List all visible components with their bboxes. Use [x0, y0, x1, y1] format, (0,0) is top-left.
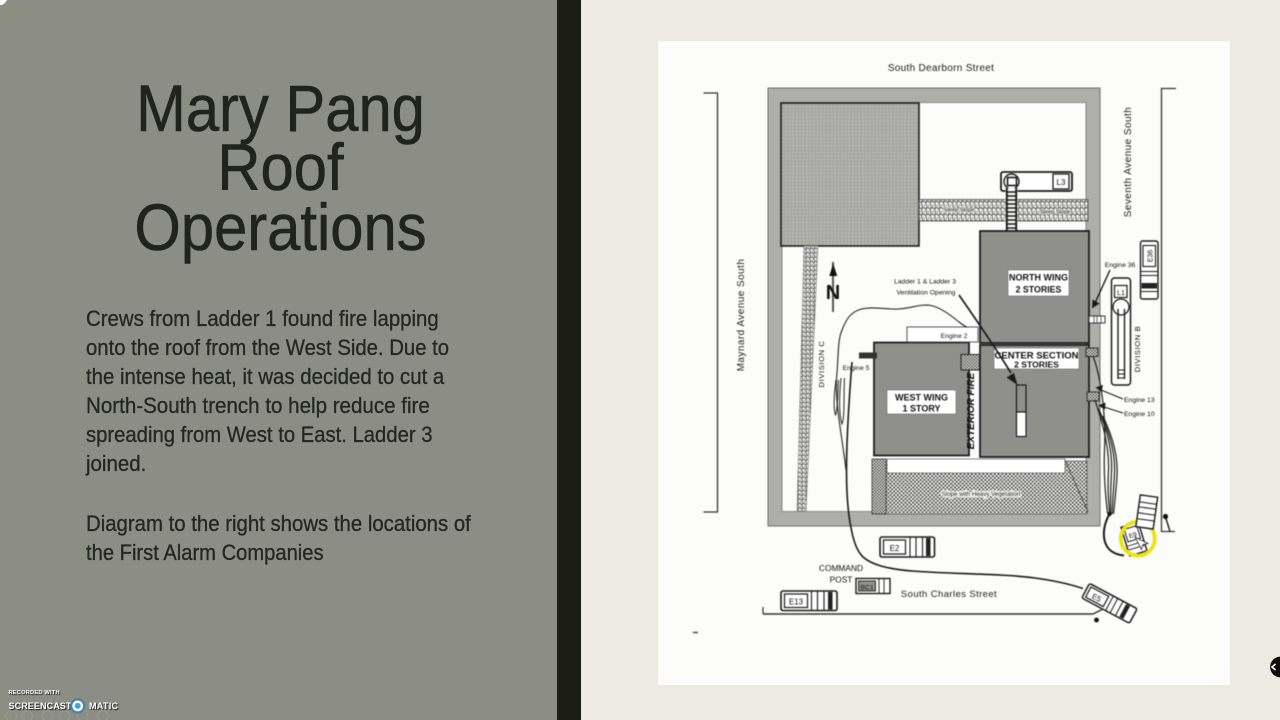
svg-text:Engine 5: Engine 5: [843, 365, 870, 372]
svg-text:DIVISION C: DIVISION C: [817, 341, 826, 388]
svg-text:Ladder 1 & Ladder 3: Ladder 1 & Ladder 3: [894, 279, 956, 286]
svg-text:EXTERIOR FIRE: EXTERIOR FIRE: [966, 372, 977, 449]
svg-text:Steep Slope: Steep Slope: [1040, 210, 1070, 216]
svg-text:NORTH WING: NORTH WING: [1009, 273, 1068, 283]
svg-text:E13: E13: [789, 598, 804, 607]
svg-text:Engine 10: Engine 10: [1124, 411, 1155, 418]
svg-text:E36: E36: [1147, 250, 1154, 263]
svg-text:South Charles Street: South Charles Street: [901, 589, 997, 600]
svg-text:Engine 2: Engine 2: [941, 333, 968, 340]
svg-text:2 STORIES: 2 STORIES: [1016, 285, 1062, 295]
svg-text:DIVISION B: DIVISION B: [1133, 326, 1142, 373]
svg-text:L3: L3: [1057, 178, 1066, 187]
svg-text:Slope with Heavy Vegetation: Slope with Heavy Vegetation: [942, 491, 1021, 498]
svg-text:Steep Slope: Steep Slope: [944, 208, 974, 214]
svg-text:Maynard Avenue South: Maynard Avenue South: [736, 259, 747, 372]
svg-text:Engine 36: Engine 36: [1105, 262, 1136, 269]
svg-text:E2: E2: [890, 544, 900, 553]
svg-text:Seventh Avenue South: Seventh Avenue South: [1123, 107, 1134, 218]
svg-text:COMMAND: COMMAND: [819, 563, 863, 573]
svg-text:Engine 13: Engine 13: [1124, 397, 1155, 404]
svg-text:2 STORIES: 2 STORIES: [1014, 360, 1059, 370]
svg-text:POST: POST: [830, 575, 853, 585]
svg-text:1 STORY: 1 STORY: [902, 404, 940, 414]
svg-text:N: N: [826, 282, 840, 304]
svg-text:BC1: BC1: [860, 585, 873, 592]
svg-text:South Dearborn Street: South Dearborn Street: [888, 63, 994, 74]
svg-text:L1: L1: [1117, 288, 1125, 297]
svg-text:WEST WING: WEST WING: [895, 393, 948, 403]
svg-text:Ventilation Opening: Ventilation Opening: [897, 290, 956, 297]
